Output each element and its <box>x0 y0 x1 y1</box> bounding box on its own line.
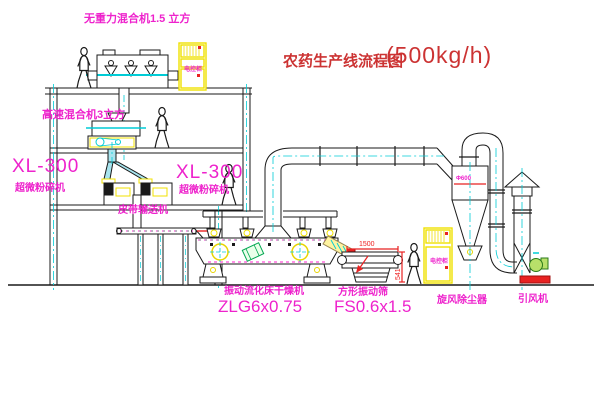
gravity-mixer-label: 无重力混合机1.5 立方 <box>84 14 190 25</box>
control-cabinet-2 <box>424 228 452 283</box>
belt-conveyor-label: 皮带输送机 <box>118 206 168 216</box>
fan-label: 引风机 <box>518 295 548 305</box>
cabinet-2-text: 电控柜 <box>430 259 448 265</box>
exhaust-stack <box>505 168 539 290</box>
induced-draft-fan <box>520 253 550 283</box>
worker-figure <box>77 48 91 89</box>
dryer-name-label: 振动流化床干燥机 <box>224 287 304 297</box>
pulverizer-right-model: XL-300 <box>176 163 243 182</box>
screen-length-dimension: 1500 <box>359 241 375 248</box>
cyclone-tag: Φ600 <box>456 176 471 182</box>
cyclone-label: 旋风除尘器 <box>437 296 487 306</box>
screen-model-label: FS0.6x1.5 <box>334 298 412 315</box>
screen-height-dimension: 541 <box>395 268 402 280</box>
pulverizer-right-name: 超微粉碎机 <box>179 186 229 196</box>
cyclone-separator <box>452 133 517 290</box>
diagram-title-capacity: (500kg/h) <box>386 44 492 67</box>
dryer-model-label: ZLG6x0.75 <box>218 298 302 315</box>
pulverizer-left-model: XL-300 <box>12 157 79 176</box>
worker-figure <box>155 108 169 149</box>
pulverizer-right <box>141 183 172 205</box>
high-speed-mixer-label: 高速混合机3立方 <box>42 110 125 121</box>
pulverizer-left-name: 超微粉碎机 <box>15 184 65 194</box>
worker-figure <box>407 244 421 285</box>
cabinet-1-text: 电控柜 <box>184 67 202 73</box>
exhaust-duct <box>255 146 453 238</box>
diagram-title: 农药生产线流程图 <box>283 54 403 69</box>
pulverizer-left <box>104 183 134 205</box>
diagram-canvas: 无重力混合机1.5 立方 农药生产线流程图 (500kg/h) 高速混合机3立方… <box>0 0 600 403</box>
